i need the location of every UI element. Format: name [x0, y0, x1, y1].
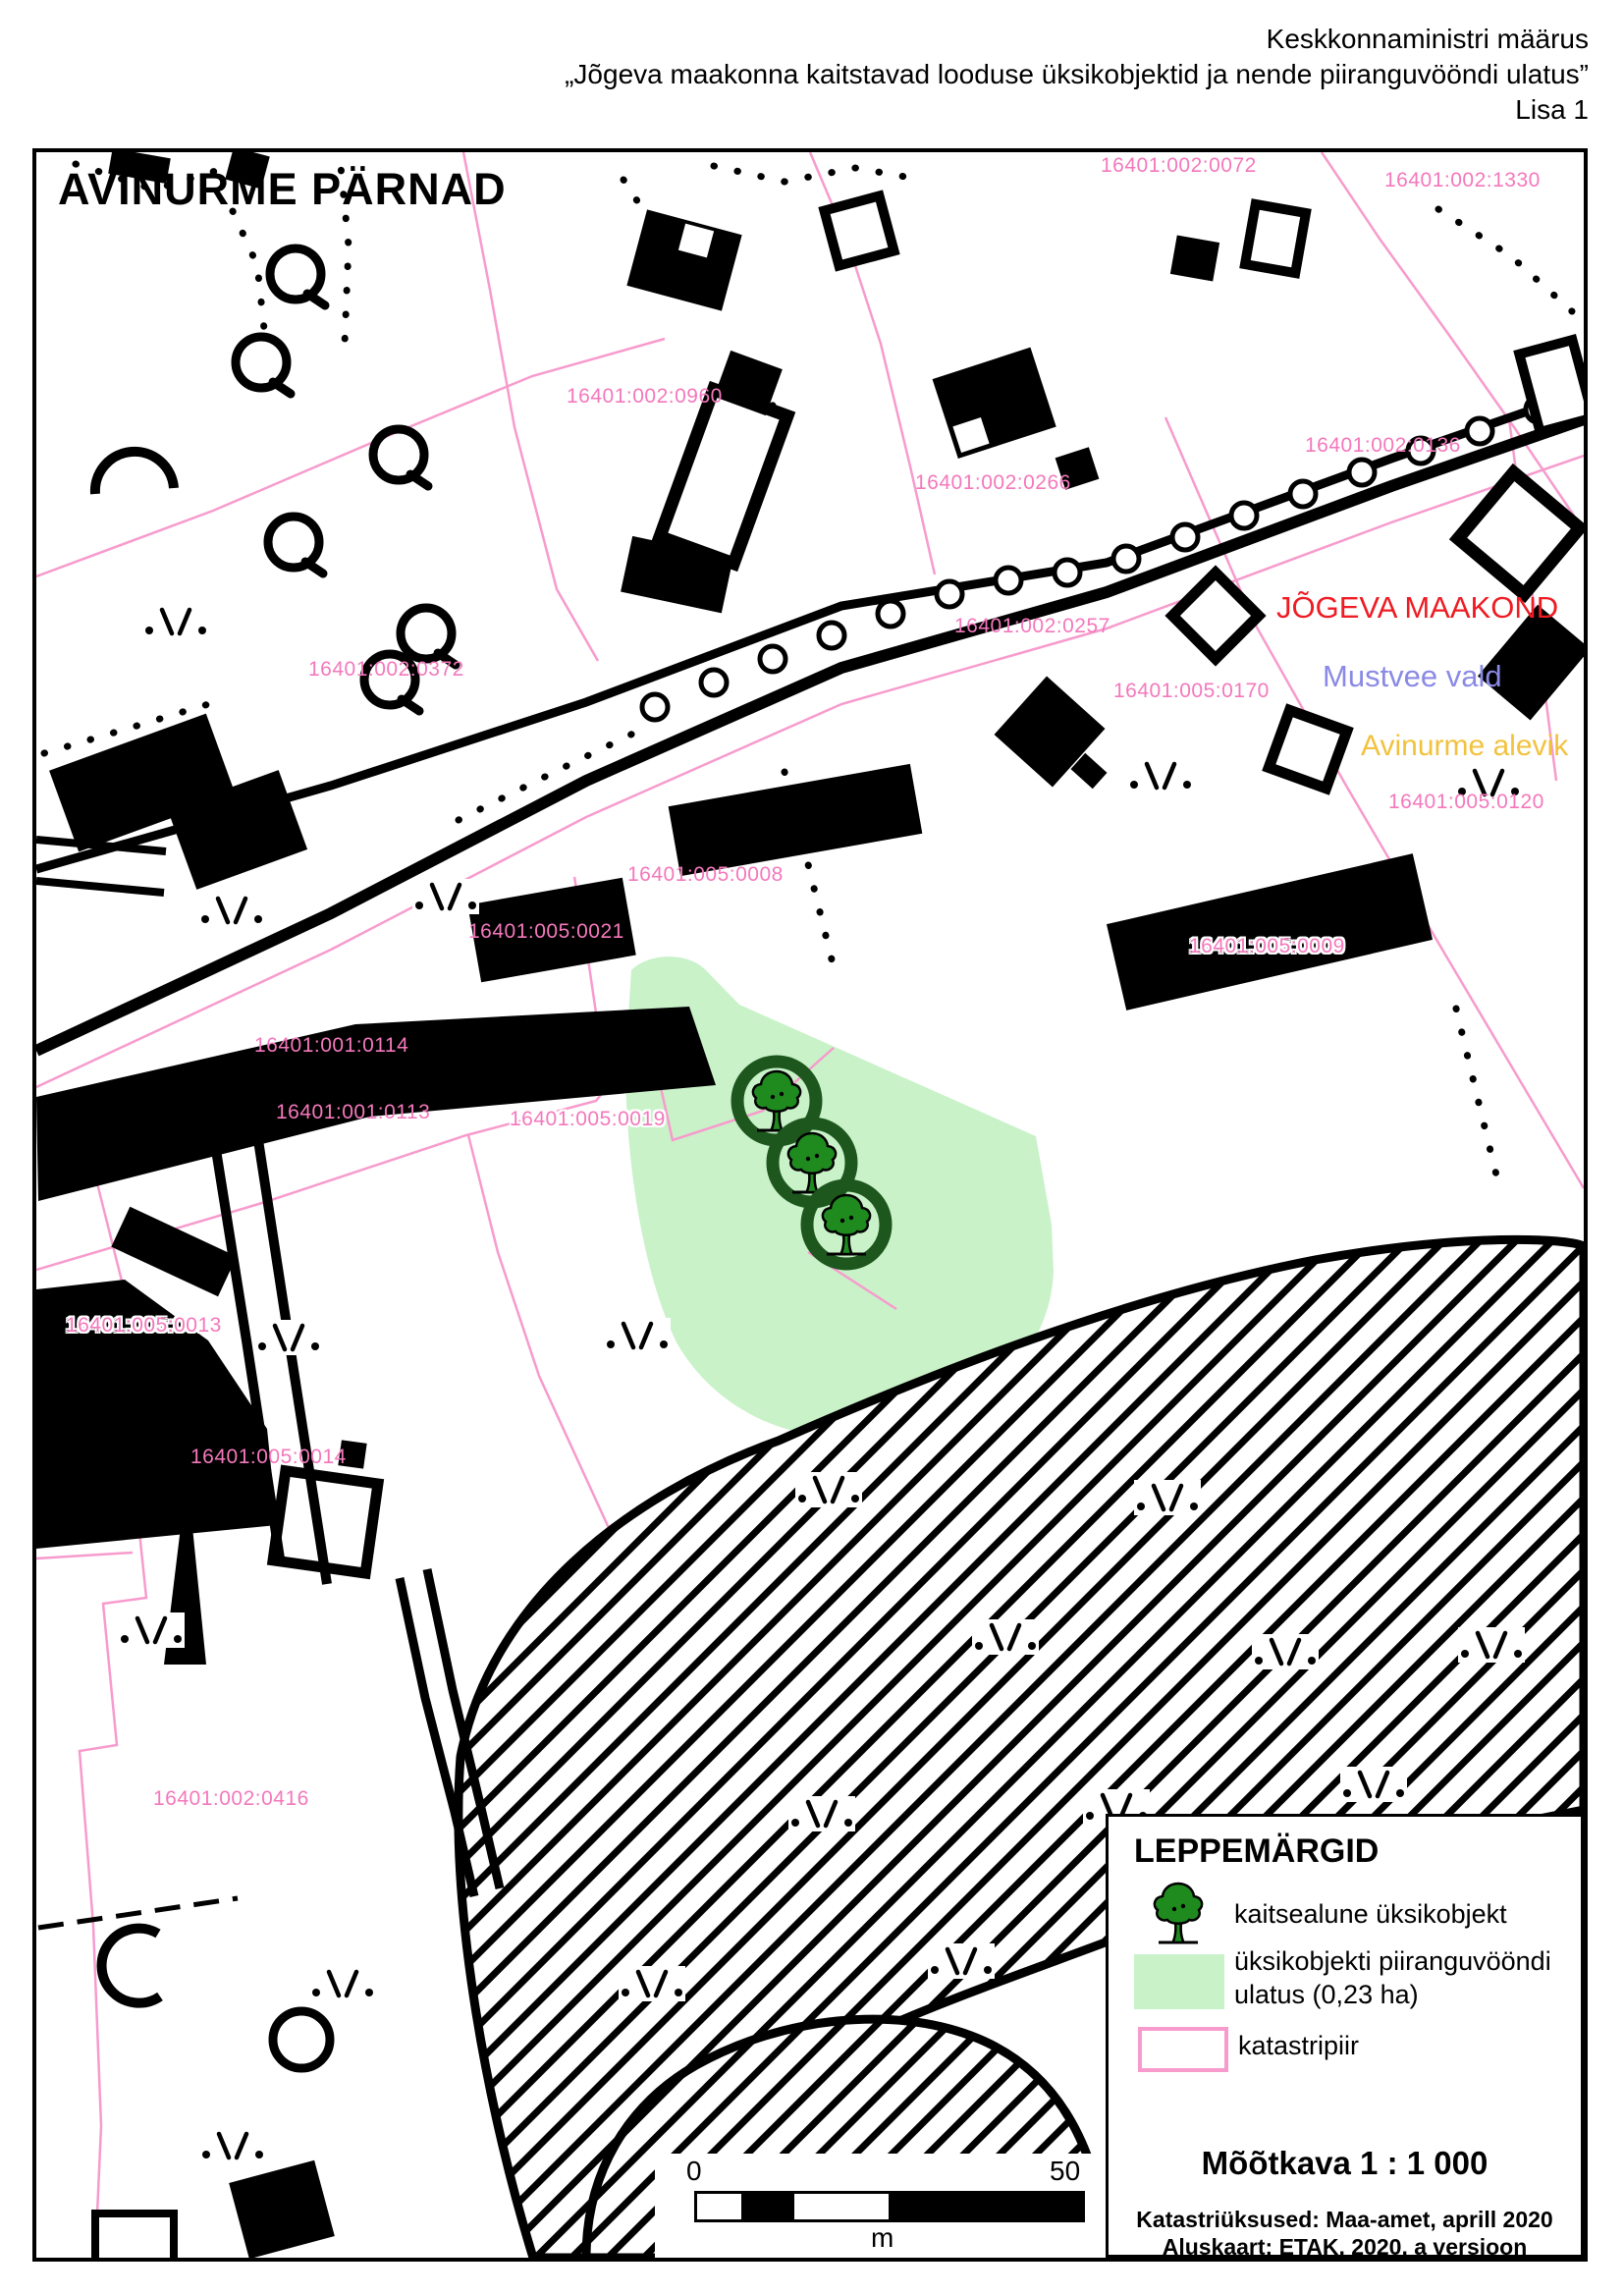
cadastral-label: 16401:005:0009 — [1189, 935, 1345, 958]
cadastral-label: 16401:002:0136 — [1305, 434, 1461, 458]
legend-item-restriction-zone: üksikobjekti piiranguvööndi ulatus (0,23… — [1234, 1944, 1578, 2011]
header-line-1: Keskkonnaministri määrus — [565, 22, 1589, 57]
cadastral-border-swatch — [1138, 2027, 1228, 2072]
restriction-zone-swatch — [1134, 1954, 1224, 2009]
document-header: Keskkonnaministri määrus „Jõgeva maakonn… — [565, 22, 1589, 128]
cadastral-label: 16401:005:0013 — [66, 1314, 222, 1338]
scale-unit-label: m — [871, 2222, 893, 2254]
credit-line-2: Aluskaart: ETAK, 2020. a versioon — [1109, 2233, 1581, 2261]
cadastral-label: 16401:002:0266 — [915, 471, 1071, 495]
header-line-3: Lisa 1 — [565, 92, 1589, 128]
cadastral-label: 16401:002:1330 — [1384, 169, 1541, 192]
cadastral-label: 16401:005:0014 — [190, 1446, 347, 1469]
cadastral-label: 16401:002:0257 — [954, 615, 1110, 638]
scale-end-label: 50 — [1050, 2156, 1080, 2187]
map-scale-text: Mõõtkava 1 : 1 000 — [1109, 2145, 1581, 2182]
legend-item-protected-object: kaitsealune üksikobjekt — [1234, 1899, 1507, 1930]
cadastral-label: 16401:002:0372 — [308, 658, 464, 682]
scale-bar-segment — [889, 2194, 1082, 2219]
credit-line-1: Katastriüksused: Maa-amet, aprill 2020 — [1109, 2206, 1581, 2233]
scale-bar: 0 50 m — [655, 2154, 1116, 2258]
region-label: Mustvee vald — [1323, 659, 1502, 694]
region-label: JÕGEVA MAAKOND — [1276, 590, 1558, 626]
cadastral-label: 16401:002:0416 — [153, 1787, 309, 1811]
page: Keskkonnaministri määrus „Jõgeva maakonn… — [0, 0, 1624, 2295]
cadastral-label: 16401:001:0113 — [276, 1101, 430, 1124]
cadastral-label: 16401:005:0120 — [1388, 791, 1544, 814]
scale-bar-segment — [794, 2194, 889, 2219]
cadastral-label: 16401:005:0021 — [468, 920, 624, 944]
cadastral-label: 16401:005:0008 — [627, 863, 784, 887]
cadastral-label: 16401:002:0072 — [1101, 154, 1257, 178]
legend-item-cadastral-border: katastripiir — [1238, 2031, 1359, 2061]
protected-tree-icon — [1148, 1876, 1209, 1950]
cadastral-label: 16401:001:0114 — [254, 1034, 408, 1058]
map-frame: AVINURME PÄRNAD 16401:002:007216401:002:… — [32, 148, 1588, 2262]
region-label: Avinurme alevik — [1361, 730, 1568, 763]
header-line-2: „Jõgeva maakonna kaitstavad looduse üksi… — [565, 57, 1589, 92]
scale-bar-segment — [741, 2194, 794, 2219]
scale-bar-graphic — [694, 2191, 1085, 2222]
legend-box: LEPPEMÄRGID kaitsealune üksikobjekt üksi… — [1106, 1814, 1584, 2258]
legend-title: LEPPEMÄRGID — [1134, 1832, 1379, 1871]
map-canvas[interactable]: AVINURME PÄRNAD 16401:002:007216401:002:… — [36, 152, 1584, 2258]
cadastral-label: 16401:005:0170 — [1113, 680, 1270, 703]
scale-bar-segment — [697, 2194, 741, 2219]
map-credits: Katastriüksused: Maa-amet, aprill 2020 A… — [1109, 2206, 1581, 2261]
cadastral-label: 16401:002:0960 — [567, 385, 723, 409]
cadastral-label: 16401:005:0019 — [510, 1108, 666, 1131]
scale-start-label: 0 — [686, 2156, 702, 2187]
map-title: AVINURME PÄRNAD — [58, 164, 507, 215]
